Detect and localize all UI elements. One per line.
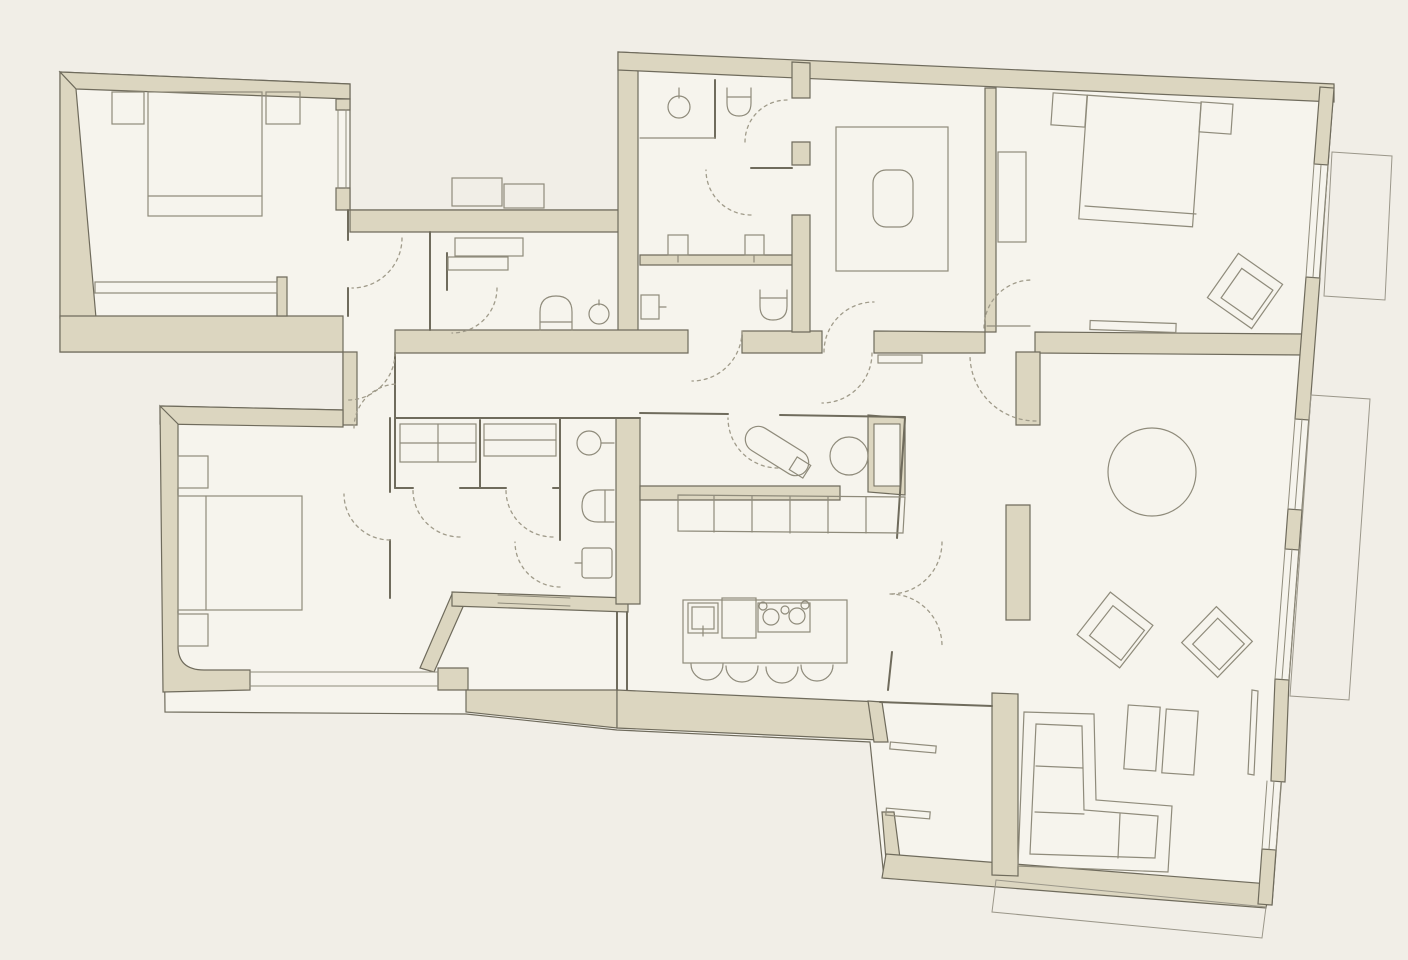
wall-core-divider-a [792,62,810,98]
floor-plan-canvas [0,0,1408,960]
shaft-box-b [504,184,544,208]
wall-corridor-north-c [874,331,985,353]
balcony-bedroom3 [1324,152,1392,300]
wall-pier-sofa [992,693,1018,876]
wall-kitchen-west [616,418,640,604]
wall-dressing-east [985,88,996,332]
wall-bedroom3-south [1035,332,1308,355]
wall-thin-laundry-north-a [640,413,728,414]
floor-patches [874,424,900,486]
wall-stem-west [343,352,357,425]
wall-pier-hall-top [1016,352,1040,425]
wall-corridor-north-a [395,330,688,353]
wall-core-west [618,52,638,332]
wall-pier-east-3 [1285,509,1302,550]
wall-stub-bedroom1 [277,277,287,316]
wall-suite-north [160,406,343,427]
shaft-box-a [452,178,502,206]
shaft-inner [874,424,900,486]
floor [60,55,1334,905]
wall-bedroom1-south [60,316,343,352]
floor-outline [60,55,1334,905]
wall-notch-north [350,210,620,232]
wall-suite-south-east [438,668,468,690]
wall-corridor-north-b [742,331,822,353]
wall-core-divider-c [792,215,810,332]
wall-laundry-divider [640,486,840,500]
wall-core-divider-b [792,142,810,165]
wall-pier-hall-mid [1006,505,1030,620]
wall-bedroom1-east-lower [336,188,350,210]
wall-bedroom1-east-upper [336,99,350,110]
wall-sink-strip [640,255,793,265]
floor-plan-page [0,0,1408,960]
